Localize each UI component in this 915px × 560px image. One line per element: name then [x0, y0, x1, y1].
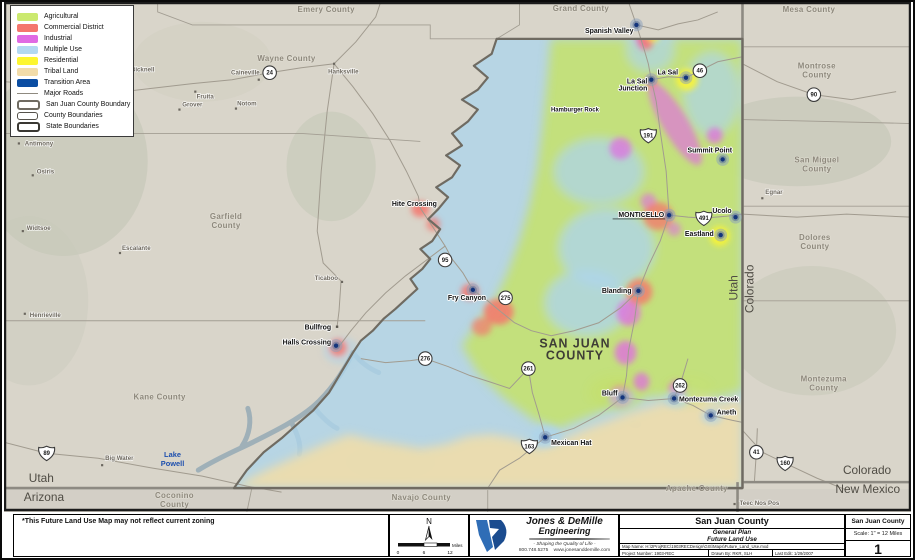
title-meta-row: Project Number: 1903-REC Drawn By: RKR, … — [620, 550, 844, 556]
county-label-montrose-county: MontroseCounty — [798, 62, 836, 80]
route-shield-24: 24 — [263, 66, 276, 80]
title-project-number: Project Number: 1903-REC — [620, 550, 709, 556]
county-label-apache-county: Apache County — [666, 484, 728, 493]
place-dot — [258, 79, 260, 81]
logo-company-line2: Engineering — [513, 527, 616, 536]
sheet-number: 1 — [846, 541, 910, 558]
town-dot — [718, 233, 722, 237]
town-dot — [649, 78, 653, 82]
footnote-text: *This Future Land Use Map may not reflec… — [22, 518, 215, 525]
place-dot — [194, 91, 196, 93]
place-label: Widtsoe — [27, 225, 51, 232]
route-number: 89 — [43, 451, 50, 457]
place-dot — [333, 63, 335, 65]
sheet-scale: Scale: 1" = 12 Miles — [846, 529, 910, 541]
route-number: 90 — [811, 93, 818, 99]
logo-box: Jones & DeMille Engineering - Shaping th… — [469, 514, 619, 557]
map-document-page: 244690952752762612624119149189163160 Spa… — [0, 0, 915, 560]
title-last-edit: Last Edit: 1/29/2007 — [773, 550, 844, 556]
town-dot — [543, 435, 547, 439]
county-label-text: County — [212, 221, 241, 230]
legend-item-label: Commercial District — [44, 24, 104, 31]
title-strip: *This Future Land Use Map may not reflec… — [4, 513, 911, 558]
legend-item-label: Residential — [44, 57, 78, 64]
route-shield-46: 46 — [693, 64, 706, 78]
title-plan: General Plan Future Land Use — [620, 529, 844, 544]
county-label-text: County — [802, 71, 831, 80]
county-label-text: County — [160, 500, 189, 509]
miles-label: Miles — [452, 543, 463, 548]
legend-outline-swatch — [17, 122, 40, 132]
place-label: Notom — [237, 101, 257, 108]
town-label: Summit Point — [687, 147, 732, 154]
state-label-utah: Utah — [727, 275, 741, 300]
map-canvas: 244690952752762612624119149189163160 Spa… — [4, 2, 911, 512]
legend-item-multiple-use: Multiple Use — [17, 44, 129, 55]
place-dot — [101, 464, 103, 466]
legend-item-label: Industrial — [44, 35, 72, 42]
county-label-grand-county: Grand County — [553, 4, 610, 13]
state-label-arizona: Arizona — [24, 490, 65, 504]
title-block: San Juan County General Plan Future Land… — [619, 514, 845, 557]
lake-powell-label: Powell — [161, 459, 185, 468]
route-shield-90: 90 — [807, 88, 820, 102]
county-label-text: County — [809, 383, 838, 392]
legend-outline-swatch — [17, 100, 40, 110]
place-label: Fruita — [197, 94, 215, 101]
legend-item-label: Tribal Land — [44, 68, 78, 75]
town-dot — [733, 215, 737, 219]
route-shield-275: 275 — [499, 291, 512, 305]
county-label-text: Dolores — [799, 233, 831, 242]
route-number: 24 — [266, 71, 273, 77]
place-label: Osiris — [37, 168, 55, 175]
county-label-text: Apache County — [666, 484, 728, 493]
place-label: Hanksville — [328, 69, 359, 76]
town-hite-crossing: Hite Crossing — [392, 201, 437, 208]
route-shield-95: 95 — [438, 253, 451, 267]
logo-contact: 800.748.5275 www.jonesanddemille.com — [513, 548, 616, 554]
route-number: 160 — [780, 461, 791, 467]
legend-item-label: Multiple Use — [44, 46, 82, 53]
route-number: 276 — [420, 357, 431, 363]
legend-item-label: County Boundaries — [44, 112, 103, 119]
town-label: Ucolo — [712, 208, 731, 215]
legend-swatch — [17, 57, 38, 65]
state-label-colorado: Colorado — [843, 463, 892, 477]
county-label-text: County — [802, 164, 831, 173]
legend-item-san-juan-county-boundary: San Juan County Boundary — [17, 99, 129, 110]
place-label: Teec Nos Pos — [740, 500, 780, 507]
town-label: Bluff — [602, 390, 618, 397]
county-label-emery-county: Emery County — [298, 5, 356, 14]
legend-swatch — [17, 13, 38, 21]
legend: AgriculturalCommercial DistrictIndustria… — [10, 5, 134, 137]
scale-tick-0: 0 — [397, 550, 400, 556]
town-label: Hite Crossing — [392, 201, 437, 208]
state-label-colorado: Colorado — [742, 264, 756, 313]
county-label-text: San Miguel — [794, 155, 839, 164]
title-county: San Juan County — [620, 515, 844, 529]
place-label: Ticaboo — [315, 275, 339, 282]
legend-item-residential: Residential — [17, 55, 129, 66]
town-dot — [471, 288, 475, 292]
town-label: Aneth — [717, 409, 737, 416]
town-dot — [667, 213, 671, 217]
route-shield-41: 41 — [750, 445, 763, 459]
route-number: 163 — [524, 444, 535, 450]
legend-item-state-boundaries: State Boundaries — [17, 121, 129, 132]
route-number: 262 — [675, 383, 686, 389]
north-arrow-icon-dark — [429, 526, 433, 540]
place-label: Antimony — [25, 140, 54, 147]
place-dot — [733, 503, 735, 505]
county-label-dolores-county: DoloresCounty — [799, 233, 831, 251]
county-label-text: Garfield — [210, 212, 242, 221]
town-label: La Sal — [627, 79, 647, 86]
place-dot — [32, 174, 34, 176]
town-label: Spanish Valley — [585, 28, 634, 35]
town-dot — [634, 23, 638, 27]
county-label-kane-county: Kane County — [134, 392, 186, 401]
legend-item-commercial-district: Commercial District — [17, 22, 129, 33]
legend-item-major-roads: Major Roads — [17, 88, 129, 99]
town-label: Halls Crossing — [283, 340, 331, 347]
route-shield-276: 276 — [419, 352, 432, 366]
place-label: Big Water — [105, 455, 134, 462]
place-dot — [22, 230, 24, 232]
logo-website: www.jonesanddemille.com — [554, 548, 611, 553]
state-label-new-mexico: New Mexico — [835, 482, 900, 496]
county-label-text: Montrose — [798, 62, 836, 71]
route-shield-261: 261 — [522, 362, 535, 376]
town-dot — [720, 157, 724, 161]
route-number: 95 — [442, 258, 449, 264]
legend-item-label: Major Roads — [44, 90, 83, 97]
legend-line-swatch — [17, 93, 38, 94]
place-dot — [18, 142, 20, 144]
logo-text: Jones & DeMille Engineering - Shaping th… — [513, 517, 616, 554]
jones-demille-logo-icon — [473, 517, 511, 555]
scale-tick-6: 6 — [423, 550, 426, 556]
north-arrow-icon — [426, 526, 430, 540]
county-label-coconino-county: CoconinoCounty — [155, 491, 194, 509]
place-label: Escalante — [122, 245, 151, 252]
town-dot — [336, 326, 338, 328]
north-scale-box: N Miles 0 6 12 — [389, 514, 469, 557]
county-label-text: Navajo County — [392, 493, 452, 502]
place-label: Bicknell — [131, 67, 155, 74]
town-label: Hamburger Rock — [551, 108, 600, 114]
place-dot — [235, 107, 237, 109]
place-dot — [24, 313, 26, 315]
route-number: 191 — [643, 133, 654, 139]
county-label-text: Grand County — [553, 4, 610, 13]
town-label: Mexican Hat — [551, 440, 592, 447]
logo-phone: 800.748.5275 — [519, 548, 548, 553]
town-label: Blanding — [602, 288, 632, 295]
north-arrow-and-scalebar: N Miles 0 6 12 — [390, 515, 468, 556]
town-dot — [684, 76, 688, 80]
county-label-wayne-county: Wayne County — [257, 54, 316, 63]
town-label: Junction — [618, 86, 647, 93]
legend-item-industrial: Industrial — [17, 33, 129, 44]
sheet-block: San Juan County Scale: 1" = 12 Miles 1 — [845, 514, 911, 557]
place-henrieville: Henrieville — [24, 312, 62, 319]
title-drawn-by: Drawn By: RKR, SLH — [709, 550, 772, 556]
county-label-text: Emery County — [298, 5, 356, 14]
town-dot — [620, 395, 624, 399]
route-number: 491 — [699, 216, 710, 222]
legend-swatch — [17, 46, 38, 54]
san-juan-county-label: COUNTY — [546, 349, 604, 363]
lake-powell-label: Lake — [164, 450, 181, 459]
county-label-text: Wayne County — [257, 54, 316, 63]
route-number: 261 — [523, 367, 534, 373]
town-label: La Sal — [658, 70, 678, 77]
place-dot — [119, 252, 121, 254]
county-label-navajo-county: Navajo County — [392, 493, 452, 502]
place-label: Henrieville — [30, 312, 62, 319]
legend-swatch — [17, 35, 38, 43]
place-dot — [761, 197, 763, 199]
place-label: Egnar — [765, 189, 783, 196]
route-number: 46 — [697, 69, 704, 75]
legend-item-label: Transition Area — [44, 79, 90, 86]
place-widtsoe: Widtsoe — [22, 225, 51, 232]
county-label-text: Mesa County — [783, 5, 836, 14]
county-label-text: County — [800, 242, 829, 251]
legend-item-tribal-land: Tribal Land — [17, 66, 129, 77]
sheet-county: San Juan County — [846, 515, 910, 529]
place-label: Caineville — [231, 70, 260, 77]
legend-item-agricultural: Agricultural — [17, 11, 129, 22]
town-dot — [709, 413, 713, 417]
town-dot — [636, 289, 640, 293]
town-hamburger-rock: Hamburger Rock — [551, 108, 600, 114]
legend-swatch — [17, 24, 38, 32]
legend-outline-swatch — [17, 112, 38, 120]
town-label: Eastland — [685, 231, 714, 238]
title-plan-line2: Future Land Use — [620, 537, 844, 544]
town-label: Montezuma Creek — [679, 396, 738, 403]
route-number: 275 — [501, 296, 512, 302]
county-label-text: Coconino — [155, 491, 194, 500]
county-label-mesa-county: Mesa County — [783, 5, 836, 14]
legend-swatch — [17, 79, 38, 87]
legend-item-label: State Boundaries — [46, 123, 99, 130]
place-label: Grover — [182, 102, 203, 109]
county-label-text: Montezuma — [801, 374, 848, 383]
legend-item-label: Agricultural — [44, 13, 78, 20]
town-label: MONTICELLO — [618, 212, 664, 219]
place-teec-nos-pos: Teec Nos Pos — [733, 500, 779, 507]
legend-swatch — [17, 68, 38, 76]
scale-tick-12: 12 — [447, 550, 453, 556]
legend-item-transition-area: Transition Area — [17, 77, 129, 88]
scale-bar: Miles 0 6 12 — [397, 543, 464, 556]
town-dot — [672, 396, 676, 400]
town-label: Fry Canyon — [448, 295, 486, 302]
route-shield-262: 262 — [673, 379, 686, 393]
town-dot — [334, 343, 338, 347]
town-label: Bullfrog — [305, 325, 332, 332]
county-label-garfield-county: GarfieldCounty — [210, 212, 242, 230]
state-label-utah: Utah — [29, 471, 54, 485]
place-dot — [178, 108, 180, 110]
legend-item-county-boundaries: County Boundaries — [17, 110, 129, 121]
legend-item-label: San Juan County Boundary — [46, 101, 130, 108]
logo-swoosh — [529, 538, 610, 540]
north-label: N — [426, 517, 432, 526]
footnote-box: *This Future Land Use Map may not reflec… — [13, 514, 389, 557]
place-dot — [341, 281, 343, 283]
route-number: 41 — [753, 450, 760, 456]
county-label-text: Kane County — [134, 392, 186, 401]
